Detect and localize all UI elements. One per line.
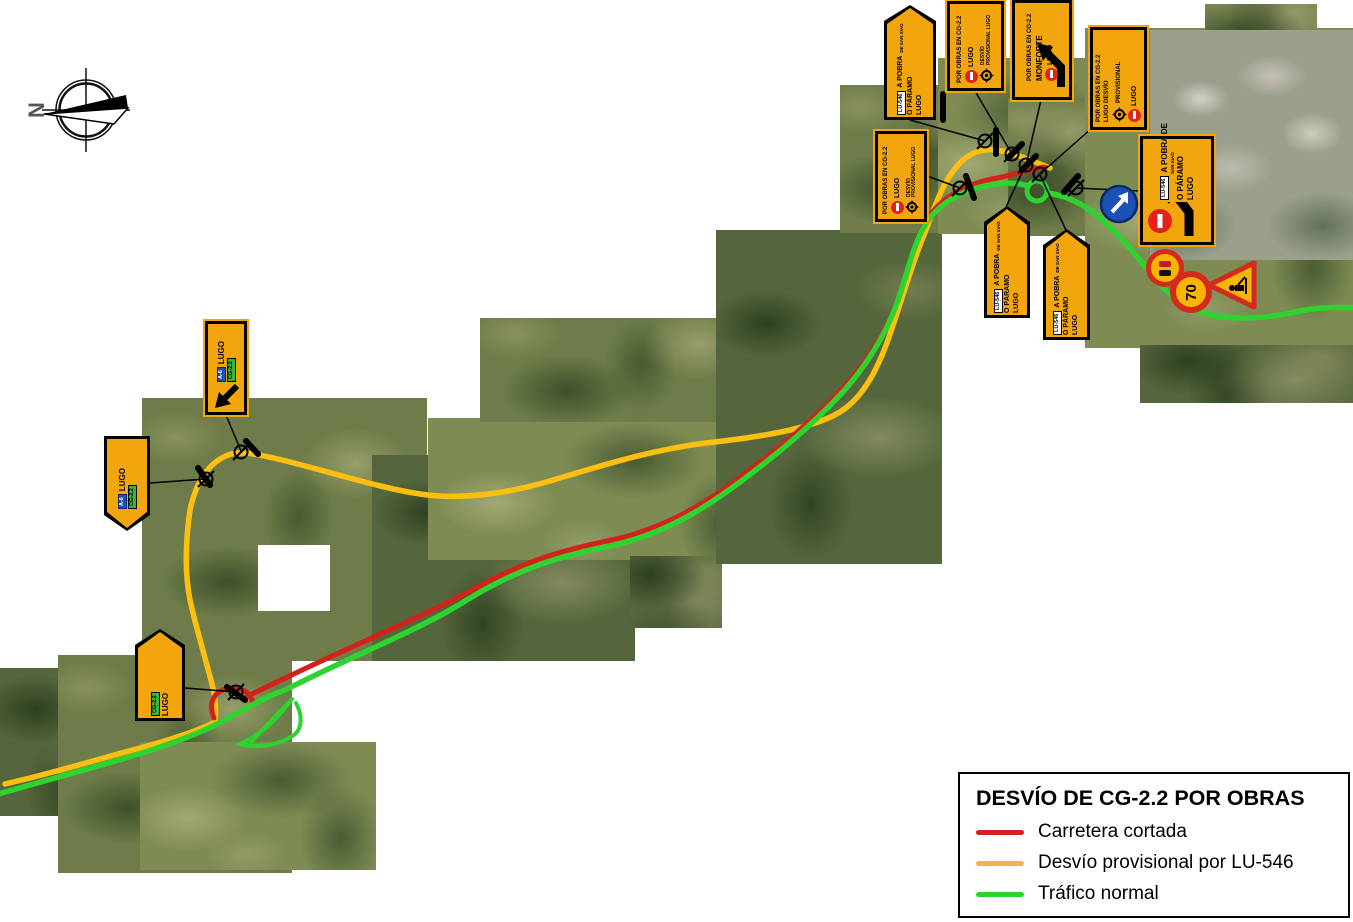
fork-arrow-closed [1145, 202, 1213, 242]
motorway-chip: A-6 [217, 367, 226, 382]
car-glyph [1159, 270, 1171, 276]
route-closed [246, 167, 1044, 697]
legend-title: DESVÍO DE CG-2.2 POR OBRAS [976, 786, 1332, 811]
sign-big-destination: LU-546 A POBRA DE SAN XIAO O PÁRAMO LUGO [1140, 136, 1214, 245]
sign-works-roundabout-west: POR OBRAS EN CG-2.2 LUGO DESVÍO PROVISIO… [875, 131, 927, 222]
location-markers [198, 133, 1084, 700]
sign-destination-east: LU-546 A POBRA DE SAN XIAO O PÁRAMO LUGO [1043, 229, 1090, 340]
roundabout-icon [1112, 107, 1127, 122]
car-glyph [1159, 261, 1171, 267]
motorway-chip: A-6 [118, 494, 127, 509]
no-entry-icon [1045, 68, 1058, 81]
closed-swatch [976, 830, 1024, 835]
legend-item-detour: Desvío provisional por LU-546 [976, 852, 1332, 874]
mandatory-direction-sign [1099, 184, 1139, 224]
cg22-chip: CG-2.2 [151, 692, 160, 716]
legend-item-normal: Tráfico normal [976, 883, 1332, 905]
cg22-chip: CG-2.2 [128, 485, 137, 509]
road-chip: LU-546 [897, 91, 906, 115]
roundabout-icon [905, 200, 919, 214]
legend-item-closed: Carretera cortada [976, 821, 1332, 843]
no-entry-icon [891, 201, 904, 214]
roundabout-icon [979, 68, 994, 83]
north-label: N [24, 102, 49, 118]
sign-exit-lugo-arrow: A-6 LUGO CG-2.2 [205, 321, 247, 415]
road-chip: LU-546 [994, 289, 1003, 313]
no-entry-icon [965, 70, 978, 83]
detour-swatch [976, 861, 1024, 866]
detour-map: N LU-546 A POBRA DE SAN XIAO O PÁRAMO LU… [0, 0, 1353, 922]
no-entry-icon [1128, 109, 1141, 122]
sign-cg22-lugo: CG-2.2 LUGO [135, 629, 185, 721]
sign-destination-top: LU-546 A POBRA DE SAN XIAO O PÁRAMO LUGO [884, 5, 936, 120]
roadworks-sign [1206, 260, 1258, 310]
down-left-arrow [211, 382, 247, 412]
normal-swatch [976, 892, 1024, 897]
road-chip: LU-546 [1160, 176, 1169, 200]
sign-exit-lugo-down: A-6 LUGO CG-2.2 [104, 436, 150, 531]
legend: DESVÍO DE CG-2.2 POR OBRAS Carretera cor… [958, 772, 1350, 918]
cg22-chip: CG-2.2 [227, 358, 236, 382]
sign-works-roundabout-top: POR OBRAS EN CG-2.2 LUGO DESVÍO PROVISIO… [947, 1, 1004, 91]
sign-works-lugo-detour: POR OBRAS EN CG-2.2 LUGO DESVÍO PROVISIO… [1090, 27, 1147, 130]
sign-destination-mid: LU-546 A POBRA DE SAN XIAO O PÁRAMO LUGO [984, 206, 1030, 318]
sign-works-monforte: POR OBRAS EN CG-2.2 MONFORTE LUGO [1012, 0, 1072, 100]
compass-rose: N [24, 60, 134, 160]
road-chip: LU-546 [1053, 311, 1062, 335]
